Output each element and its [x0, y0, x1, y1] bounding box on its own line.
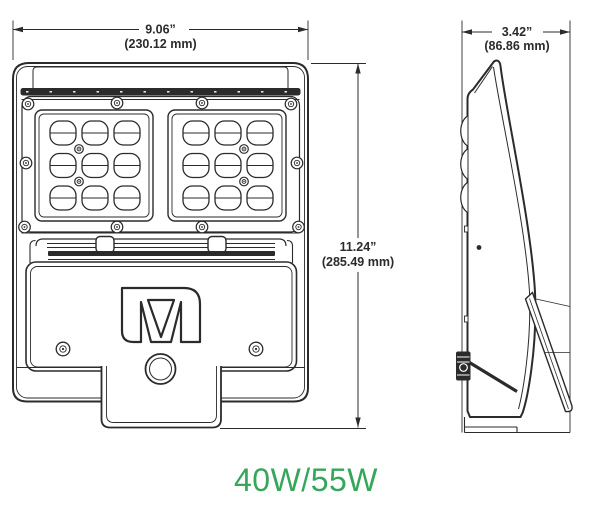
lens — [247, 121, 273, 145]
lens — [215, 154, 241, 178]
latch-tab — [96, 237, 114, 253]
screw-icon — [196, 97, 208, 109]
visor-band — [21, 88, 301, 96]
front-width-mm-label: (230.12 mm) — [124, 37, 196, 51]
screw-icon — [19, 221, 31, 233]
mounting-arm-hatch — [530, 299, 569, 410]
screw-icon — [240, 145, 249, 154]
height-mm-label: (285.49 mm) — [322, 255, 394, 269]
side-depth-mm-label: (86.86 mm) — [484, 39, 549, 53]
lens — [114, 186, 140, 210]
screw-icon — [285, 98, 297, 110]
lens — [247, 154, 273, 178]
edge-nub — [465, 316, 469, 322]
side-view — [456, 61, 572, 433]
lens — [82, 186, 108, 210]
screw-icon — [240, 177, 249, 186]
photocell-boss — [146, 354, 176, 384]
screw-icon — [196, 221, 208, 233]
front-width-label: 9.06” — [145, 23, 176, 37]
lens — [82, 121, 108, 145]
screw-icon — [75, 177, 84, 186]
technical-drawing: M — [0, 0, 612, 507]
lens — [50, 154, 76, 178]
lens-bumps — [461, 116, 468, 213]
screw-icon — [20, 157, 32, 169]
base-lines — [465, 417, 571, 433]
bracket-line-upper — [536, 299, 570, 307]
side-screw-dot — [477, 245, 482, 250]
lens — [247, 186, 273, 210]
mounting-knob — [456, 352, 471, 381]
lens — [183, 121, 209, 145]
lens — [183, 154, 209, 178]
lens — [215, 186, 241, 210]
screw-icon — [75, 145, 84, 154]
lens — [215, 121, 241, 145]
lens — [114, 121, 140, 145]
lens — [82, 154, 108, 178]
screw-icon — [111, 97, 123, 109]
height-label: 11.24” — [340, 240, 377, 254]
screw-icon — [56, 342, 70, 356]
screw-icon — [249, 342, 263, 356]
screw-icon — [22, 98, 34, 110]
screw-icon — [111, 221, 123, 233]
led-module-right — [168, 110, 286, 221]
front-view: M — [13, 63, 308, 428]
spec-drawing-page: M — [0, 0, 612, 507]
lens — [183, 186, 209, 210]
led-module-left — [35, 110, 153, 221]
latch-tab — [208, 237, 226, 253]
screw-icon — [291, 157, 303, 169]
side-depth-label: 3.42” — [502, 25, 533, 39]
edge-nub — [465, 226, 469, 232]
lens — [50, 121, 76, 145]
screw-icon — [293, 221, 305, 233]
lens — [114, 154, 140, 178]
lens — [50, 186, 76, 210]
wattage-label: 40W/55W — [0, 462, 612, 499]
